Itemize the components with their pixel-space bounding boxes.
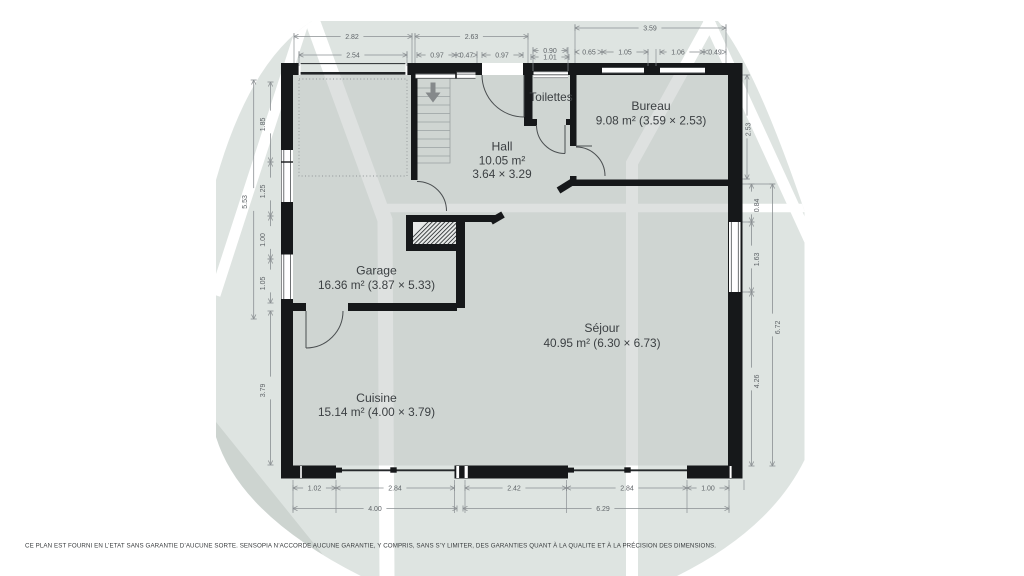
svg-text:10.05 m²: 10.05 m² [479,154,526,168]
svg-text:1.02: 1.02 [308,485,322,492]
svg-text:Cuisine: Cuisine [356,391,397,405]
svg-text:4.00: 4.00 [368,506,382,513]
svg-text:0.47: 0.47 [460,52,474,59]
svg-text:2.54: 2.54 [346,52,360,59]
svg-text:0.97: 0.97 [430,52,444,59]
svg-text:40.95 m² (6.30 × 6.73): 40.95 m² (6.30 × 6.73) [543,336,660,350]
svg-text:Garage: Garage [356,264,397,278]
svg-text:6.29: 6.29 [596,506,610,513]
svg-text:CE PLAN EST FOURNI EN L’ETAT S: CE PLAN EST FOURNI EN L’ETAT SANS GARANT… [25,543,716,550]
svg-text:0.84: 0.84 [754,198,761,212]
svg-text:5.53: 5.53 [242,195,249,209]
svg-text:2.63: 2.63 [465,34,479,41]
svg-text:1.01: 1.01 [543,54,557,61]
svg-text:Hall: Hall [492,140,513,154]
svg-text:3.59: 3.59 [643,25,657,32]
svg-text:1.63: 1.63 [754,252,761,266]
svg-text:0.97: 0.97 [495,52,509,59]
svg-text:9.08 m² (3.59 × 2.53): 9.08 m² (3.59 × 2.53) [596,114,707,128]
svg-text:0.65: 0.65 [582,49,596,56]
svg-text:4.26: 4.26 [754,374,761,388]
svg-text:2.42: 2.42 [507,485,521,492]
svg-text:2.84: 2.84 [620,485,634,492]
svg-text:15.14 m² (4.00 × 3.79): 15.14 m² (4.00 × 3.79) [318,405,435,419]
svg-text:3.79: 3.79 [260,383,267,397]
svg-text:0.49: 0.49 [708,49,722,56]
svg-text:2.82: 2.82 [345,34,359,41]
svg-text:1.00: 1.00 [701,485,715,492]
svg-text:6.72: 6.72 [775,320,782,334]
svg-text:1.05: 1.05 [260,276,267,290]
svg-text:Séjour: Séjour [584,321,619,335]
svg-text:16.36 m² (3.87 × 5.33): 16.36 m² (3.87 × 5.33) [318,278,435,292]
svg-text:1.06: 1.06 [671,49,685,56]
svg-text:1.25: 1.25 [260,184,267,198]
svg-text:1.85: 1.85 [260,117,267,131]
svg-text:Toilettes: Toilettes [529,90,572,104]
svg-text:1.05: 1.05 [618,49,632,56]
svg-text:3.64 × 3.29: 3.64 × 3.29 [472,167,531,181]
svg-text:Bureau: Bureau [631,99,670,113]
svg-text:2.84: 2.84 [388,485,402,492]
svg-text:2.53: 2.53 [746,122,753,136]
svg-text:1.00: 1.00 [260,233,267,247]
